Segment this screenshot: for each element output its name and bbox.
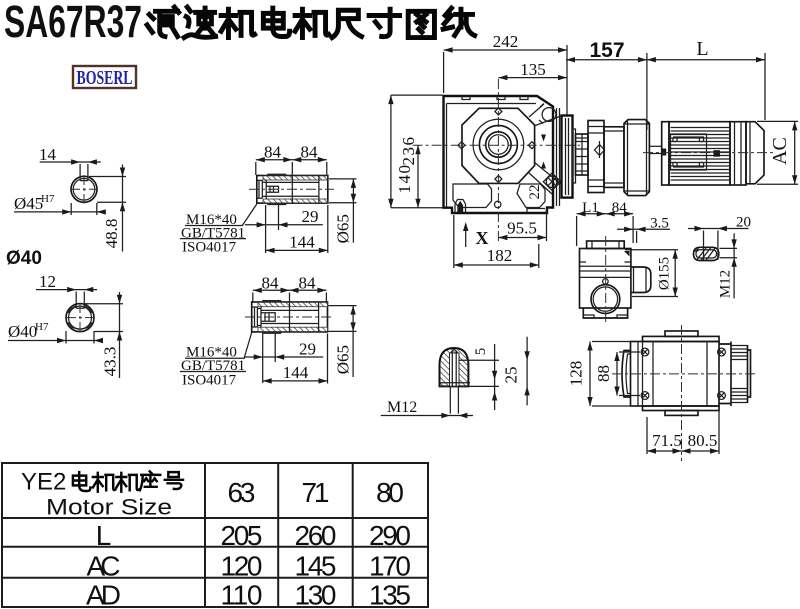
svg-text:AD: AD — [86, 580, 121, 609]
svg-text:135: 135 — [520, 60, 546, 79]
svg-text:5: 5 — [473, 348, 489, 356]
svg-text:128: 128 — [567, 361, 586, 387]
svg-text:H7: H7 — [41, 193, 55, 205]
svg-text:88: 88 — [594, 365, 613, 382]
svg-text:22: 22 — [527, 185, 543, 200]
svg-text:260: 260 — [295, 520, 337, 551]
svg-text:M12: M12 — [718, 270, 734, 298]
svg-text:71: 71 — [302, 477, 330, 508]
svg-text:80.5: 80.5 — [688, 431, 718, 450]
svg-text:95.5: 95.5 — [507, 219, 537, 238]
svg-text:71.5: 71.5 — [652, 431, 682, 450]
svg-text:14: 14 — [39, 145, 57, 164]
svg-text:84: 84 — [299, 273, 317, 292]
svg-text:157: 157 — [589, 39, 624, 62]
svg-text:236: 236 — [399, 136, 418, 166]
svg-text:12: 12 — [39, 272, 56, 291]
svg-text:130: 130 — [295, 580, 337, 609]
svg-text:ISO4017: ISO4017 — [182, 240, 237, 256]
svg-text:63: 63 — [228, 477, 256, 508]
svg-text:84: 84 — [262, 273, 280, 292]
svg-text:242: 242 — [493, 32, 519, 51]
svg-text:L: L — [96, 520, 112, 551]
svg-text:110: 110 — [221, 580, 263, 609]
svg-text:120: 120 — [221, 551, 263, 582]
svg-text:84: 84 — [301, 143, 319, 162]
svg-text:X: X — [476, 228, 489, 248]
svg-text:SA67R37: SA67R37 — [4, 0, 142, 47]
svg-text:H7: H7 — [35, 321, 49, 333]
svg-text:Ø40: Ø40 — [6, 248, 42, 269]
svg-text:290: 290 — [369, 520, 411, 551]
svg-text:144: 144 — [289, 233, 315, 252]
svg-text:182: 182 — [487, 246, 513, 265]
svg-text:25: 25 — [502, 367, 521, 384]
svg-text:Motor Size: Motor Size — [46, 495, 172, 520]
svg-text:205: 205 — [221, 520, 263, 551]
svg-text:145: 145 — [295, 551, 337, 582]
svg-text:48.8: 48.8 — [102, 219, 121, 249]
svg-text:29: 29 — [302, 207, 319, 226]
svg-text:BOSERL: BOSERL — [77, 67, 133, 89]
svg-text:YE2: YE2 — [21, 469, 66, 496]
svg-text:43.3: 43.3 — [101, 347, 120, 377]
svg-text:Ø155: Ø155 — [657, 257, 673, 290]
svg-text:L: L — [696, 38, 708, 60]
svg-text:AC: AC — [769, 137, 791, 165]
svg-text:Ø40: Ø40 — [8, 322, 37, 341]
svg-text:Ø65: Ø65 — [334, 214, 353, 243]
svg-text:AC: AC — [87, 551, 121, 582]
svg-text:29: 29 — [299, 340, 316, 359]
svg-text:ISO4017: ISO4017 — [182, 373, 237, 389]
svg-text:80: 80 — [376, 477, 404, 508]
svg-text:Ø65: Ø65 — [334, 345, 353, 374]
svg-text:135: 135 — [369, 580, 411, 609]
svg-text:170: 170 — [369, 551, 411, 582]
svg-text:144: 144 — [283, 363, 309, 382]
svg-text:140: 140 — [395, 164, 414, 194]
svg-text:Ø45: Ø45 — [14, 194, 43, 213]
svg-text:M12: M12 — [387, 399, 417, 416]
svg-text:84: 84 — [264, 143, 282, 162]
